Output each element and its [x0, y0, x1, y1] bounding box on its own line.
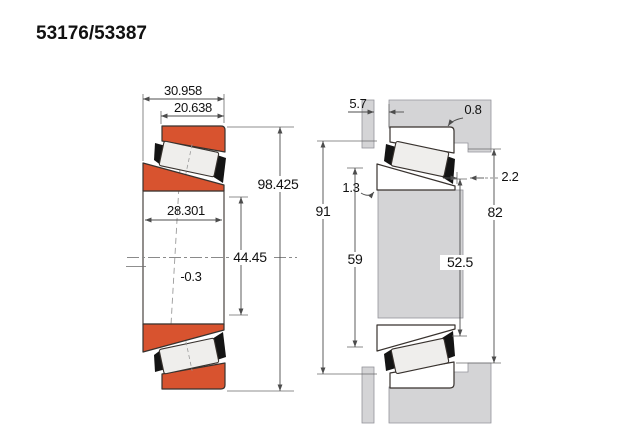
dim-label-inner-width: 28.301: [167, 203, 205, 218]
dim-bore-diameter: 44.45: [229, 197, 271, 315]
dim-label-housing-shoulder: 82: [488, 204, 503, 220]
top-half-assembly: [143, 126, 226, 191]
dim-label-top-gap: 5.7: [349, 96, 366, 111]
dim-label-housing-abutment: 91: [316, 203, 331, 219]
left-view-cross-section: 30.958 20.638 98.425 44.45 28.301: [126, 83, 304, 391]
dim-label-cup-width: 20.638: [174, 100, 212, 115]
dim-front-clearance: 2.2: [443, 169, 519, 184]
dim-label-bore-diameter: 44.45: [233, 249, 267, 265]
dim-label-shaft-abutment-left: 59: [348, 251, 363, 267]
bearing-datasheet-figure: 53176/53387: [0, 0, 640, 440]
bottom-half-assembly: [143, 324, 226, 389]
dim-label-overall-width: 30.958: [164, 83, 202, 98]
drawing-svg: 53176/53387: [0, 0, 640, 440]
dim-cup-width: 20.638: [161, 100, 224, 124]
dim-label-front-clearance: 2.2: [501, 169, 518, 184]
dim-label-offset: -0.3: [180, 269, 201, 284]
housing-left-bottom: [362, 367, 374, 423]
dim-backface-clearance: 1.3: [342, 180, 374, 195]
right-view-mounting: 5.7 0.8 1.3 2.2 91: [312, 96, 519, 423]
top-bearing: [377, 127, 455, 190]
dim-label-backface-clearance: 1.3: [342, 180, 359, 195]
dim-label-fillet-radius: 0.8: [464, 102, 481, 117]
dim-label-outer-diameter: 98.425: [257, 176, 299, 192]
bottom-bearing: [377, 325, 455, 388]
page-title: 53176/53387: [36, 23, 147, 44]
dim-label-shaft-abutment-right: 52.5: [447, 254, 474, 270]
